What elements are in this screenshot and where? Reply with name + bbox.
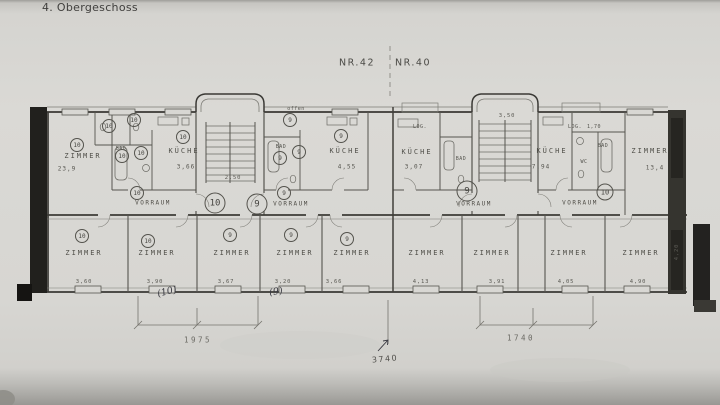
room-label-zimmer-left: ZIMMER (64, 152, 101, 160)
room-label-kueche-10-right: KÜCHE (536, 147, 567, 155)
room-label-bad-9-left: BAD (276, 144, 287, 150)
building-number-left: NR.42 (339, 58, 375, 69)
entrance-mark-apartment-9-right: 9 (457, 181, 478, 202)
apartment-mark-vorraum-10-left: 10 (130, 186, 144, 200)
room-label-bottom-9: ZIMMER (622, 249, 659, 257)
dimension-right-vertical: 4,20 (674, 244, 680, 260)
dimension-width-6: 4,13 (413, 279, 429, 285)
area-kueche-9-right: 3,07 (405, 164, 423, 171)
open-annotation: offen (287, 106, 305, 112)
area-zimmer-left: 23,9 (58, 166, 76, 173)
room-label-bottom-3: ZIMMER (213, 249, 250, 257)
page-title: 4. Obergeschoss (42, 1, 138, 14)
room-label-bottom-1: ZIMMER (65, 249, 102, 257)
dimension-stair-right: 3,50 (499, 113, 515, 119)
area-kueche-10-left: 3,66 (177, 164, 195, 171)
handwritten-apartment-9: (9) (269, 286, 284, 299)
apartment-mark-wc-left-b: 10 (127, 113, 141, 127)
apartment-mark-room-1: 10 (75, 229, 89, 243)
apartment-mark-kueche-9-left: 9 (334, 129, 348, 143)
dimension-width-4: 3,20 (275, 279, 291, 285)
room-label-vorraum-9-left: VORRAUM (273, 201, 309, 208)
room-label-loggia-left: LOG. (413, 124, 427, 130)
dimension-width-2: 3,90 (147, 279, 163, 285)
room-label-bottom-4: ZIMMER (276, 249, 313, 257)
area-kueche-10-right: 7,94 (532, 164, 550, 171)
area-zimmer-10-right: 13,4 (646, 165, 664, 172)
room-label-wc-10-right: WC (580, 159, 587, 165)
apartment-mark-wc-left-a: 10 (102, 119, 116, 133)
room-label-vorraum-10-right: VORRAUM (562, 200, 598, 207)
entrance-mark-apartment-10-right: 10 (597, 184, 614, 201)
room-label-kueche-10-left: KÜCHE (168, 147, 199, 155)
dimension-width-3: 3,67 (218, 279, 234, 285)
room-label-vorraum-10-left: VORRAUM (135, 200, 171, 207)
dimension-width-1: 3,60 (76, 279, 92, 285)
room-label-bad-10-right: BAD (598, 143, 609, 149)
dimension-right-total: 1740 (507, 334, 535, 343)
apartment-mark-kueche-10-left: 10 (176, 130, 190, 144)
apartment-mark-room-2: 10 (141, 234, 155, 248)
room-label-bad-9-right: BAD (456, 156, 467, 162)
room-label-kueche-9-left: KÜCHE (329, 147, 360, 155)
apartment-mark-room-3: 9 (223, 228, 237, 242)
apartment-mark-room-4: 9 (284, 228, 298, 242)
room-label-kueche-9-right: KÜCHE (401, 148, 432, 156)
apartment-mark-bad-9-b: 9 (292, 145, 306, 159)
building-number-right: NR.40 (395, 58, 431, 69)
room-label-loggia-right: LOG. (568, 124, 582, 130)
dimension-loggia-right: 1,70 (587, 124, 601, 130)
area-kueche-9-left: 4,55 (338, 164, 356, 171)
apartment-mark-bad-left-a: 10 (115, 149, 129, 163)
apartment-mark-room-5: 9 (340, 232, 354, 246)
room-label-bottom-8: ZIMMER (550, 249, 587, 257)
dimension-stair-left: 2,50 (225, 175, 241, 181)
apartment-mark-top-9: 9 (283, 113, 297, 127)
room-label-zimmer-10-right: ZIMMER (631, 147, 668, 155)
room-label-bottom-5: ZIMMER (333, 249, 370, 257)
room-label-vorraum-9-right: VORRAUM (456, 201, 492, 208)
dimension-width-9: 4,90 (630, 279, 646, 285)
dimension-width-7: 3,91 (489, 279, 505, 285)
apartment-mark-bad-9-a: 9 (273, 151, 287, 165)
dimension-width-8: 4,05 (558, 279, 574, 285)
apartment-mark-vorraum-9-left: 9 (277, 186, 291, 200)
room-label-bottom-2: ZIMMER (138, 249, 175, 257)
scanned-floorplan-page: 4. Obergeschoss NR.42 NR.40 ZIMMER 23,9 … (0, 0, 720, 405)
room-label-bottom-6: ZIMMER (408, 249, 445, 257)
apartment-mark-zimmer-left: 10 (70, 138, 84, 152)
entrance-mark-apartment-9-left: 9 (247, 194, 268, 215)
dimension-left-total: 1975 (184, 336, 212, 345)
entrance-mark-apartment-10-left: 10 (205, 193, 226, 214)
apartment-mark-bad-left-b: 10 (134, 146, 148, 160)
room-label-bottom-7: ZIMMER (473, 249, 510, 257)
dimension-width-5: 3,66 (326, 279, 342, 285)
